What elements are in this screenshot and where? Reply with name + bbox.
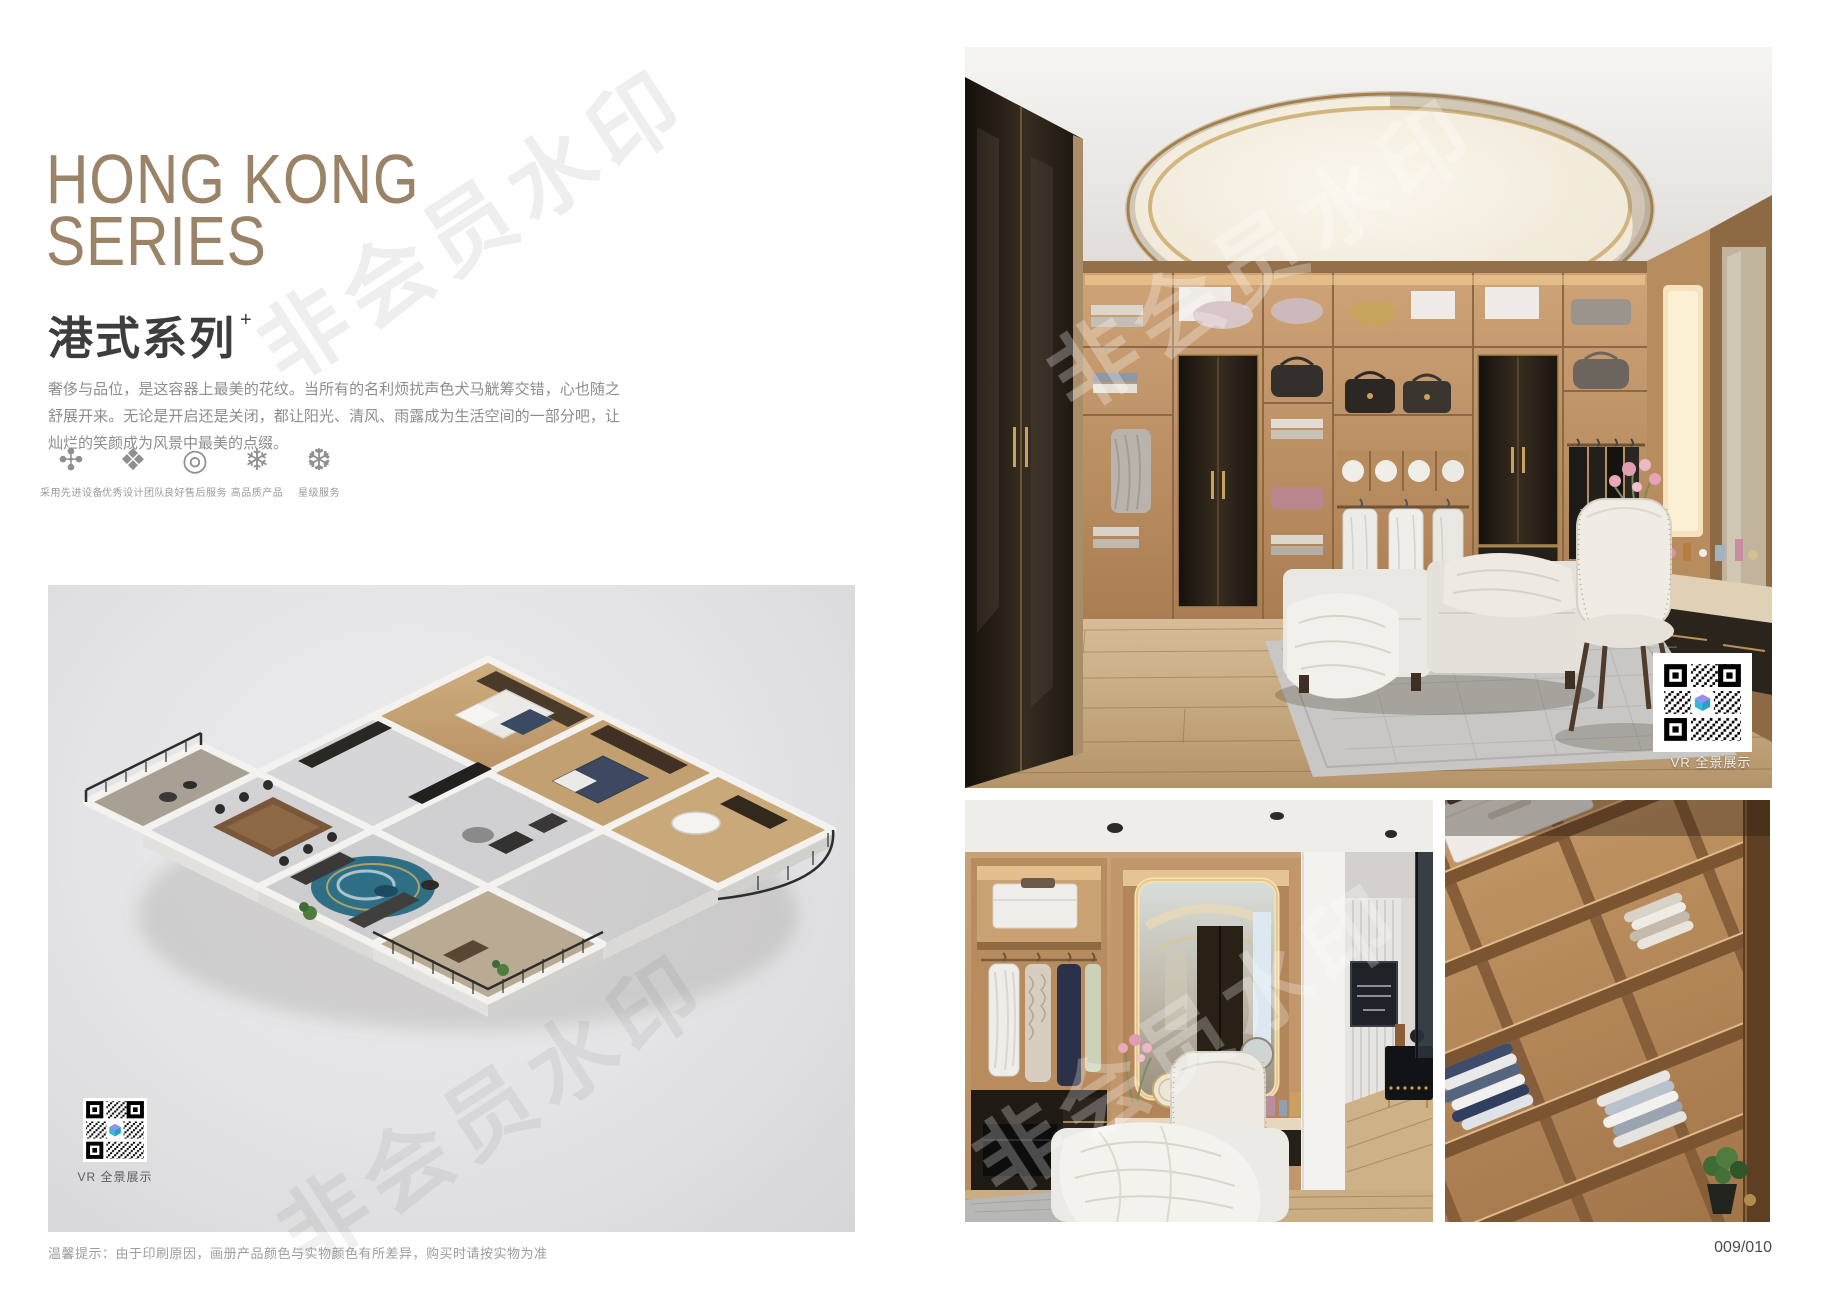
ornate-snowflake-icon: ❆ — [288, 444, 350, 478]
photo-main-walkin-closet — [965, 47, 1772, 788]
snowflake-icon: ❄ — [226, 444, 288, 478]
feature-after-sales: ◎ 良好售后服务 — [164, 444, 226, 499]
floorplan-render-panel — [48, 585, 855, 1232]
wall-poster — [1351, 962, 1397, 1026]
bench-ottoman — [1275, 553, 1595, 715]
white-pillar — [1301, 852, 1345, 1190]
ceiling — [965, 800, 1433, 852]
floorplan-vr-label: VR 全景展示 — [55, 1168, 175, 1185]
top-shadow — [1445, 800, 1770, 836]
isometric-floorplan-illustration — [48, 585, 855, 1232]
feature-label: 星级服务 — [288, 484, 350, 499]
photo-dressing-area — [965, 800, 1433, 1222]
side-frame — [1743, 800, 1770, 1222]
series-title-chinese: 港式系列+ — [48, 302, 254, 367]
feature-quality-product: ❄ 高品质产品 — [226, 444, 288, 499]
feature-advanced-equipment: ✣ 采用先进设备 — [40, 444, 102, 499]
series-title-english: HONG KONG SERIES — [46, 148, 419, 272]
title-plus-mark: + — [240, 309, 254, 331]
tall-glass-wardrobe — [965, 77, 1083, 788]
series-title-line2: SERIES — [46, 210, 419, 272]
feature-label: 采用先进设备 — [40, 484, 102, 499]
adjacent-bedroom-view — [1345, 852, 1433, 1190]
page-number: 009/010 — [1712, 1239, 1772, 1257]
feature-icon-row: ✣ 采用先进设备 ❖ 优秀设计团队 ◎ 良好售后服务 ❄ 高品质产品 ❆ 星级服… — [40, 444, 350, 499]
floorplan-vr-qr-code — [83, 1098, 147, 1162]
white-suitcase — [993, 884, 1077, 928]
series-title-line1: HONG KONG — [46, 148, 419, 210]
footer-disclaimer: 温馨提示：由于印刷原因，画册产品颜色与实物颜色有所差异，购买时请按实物为准 — [48, 1243, 548, 1262]
photo-shelf-closeup — [1445, 800, 1770, 1222]
feature-design-team: ❖ 优秀设计团队 — [102, 444, 164, 499]
feature-label: 优秀设计团队 — [102, 484, 164, 499]
feature-label: 良好售后服务 — [164, 484, 226, 499]
feature-label: 高品质产品 — [226, 484, 288, 499]
main-photo-vr-label: VR 全景展示 — [1655, 752, 1767, 771]
main-photo-vr-qr-code — [1653, 653, 1752, 752]
rosette-ornament-icon: ❖ — [102, 444, 164, 478]
feature-star-service: ❆ 星级服务 — [288, 444, 350, 499]
ring-swirl-icon: ◎ — [164, 444, 226, 478]
pinwheel-ornament-icon: ✣ — [40, 444, 102, 478]
